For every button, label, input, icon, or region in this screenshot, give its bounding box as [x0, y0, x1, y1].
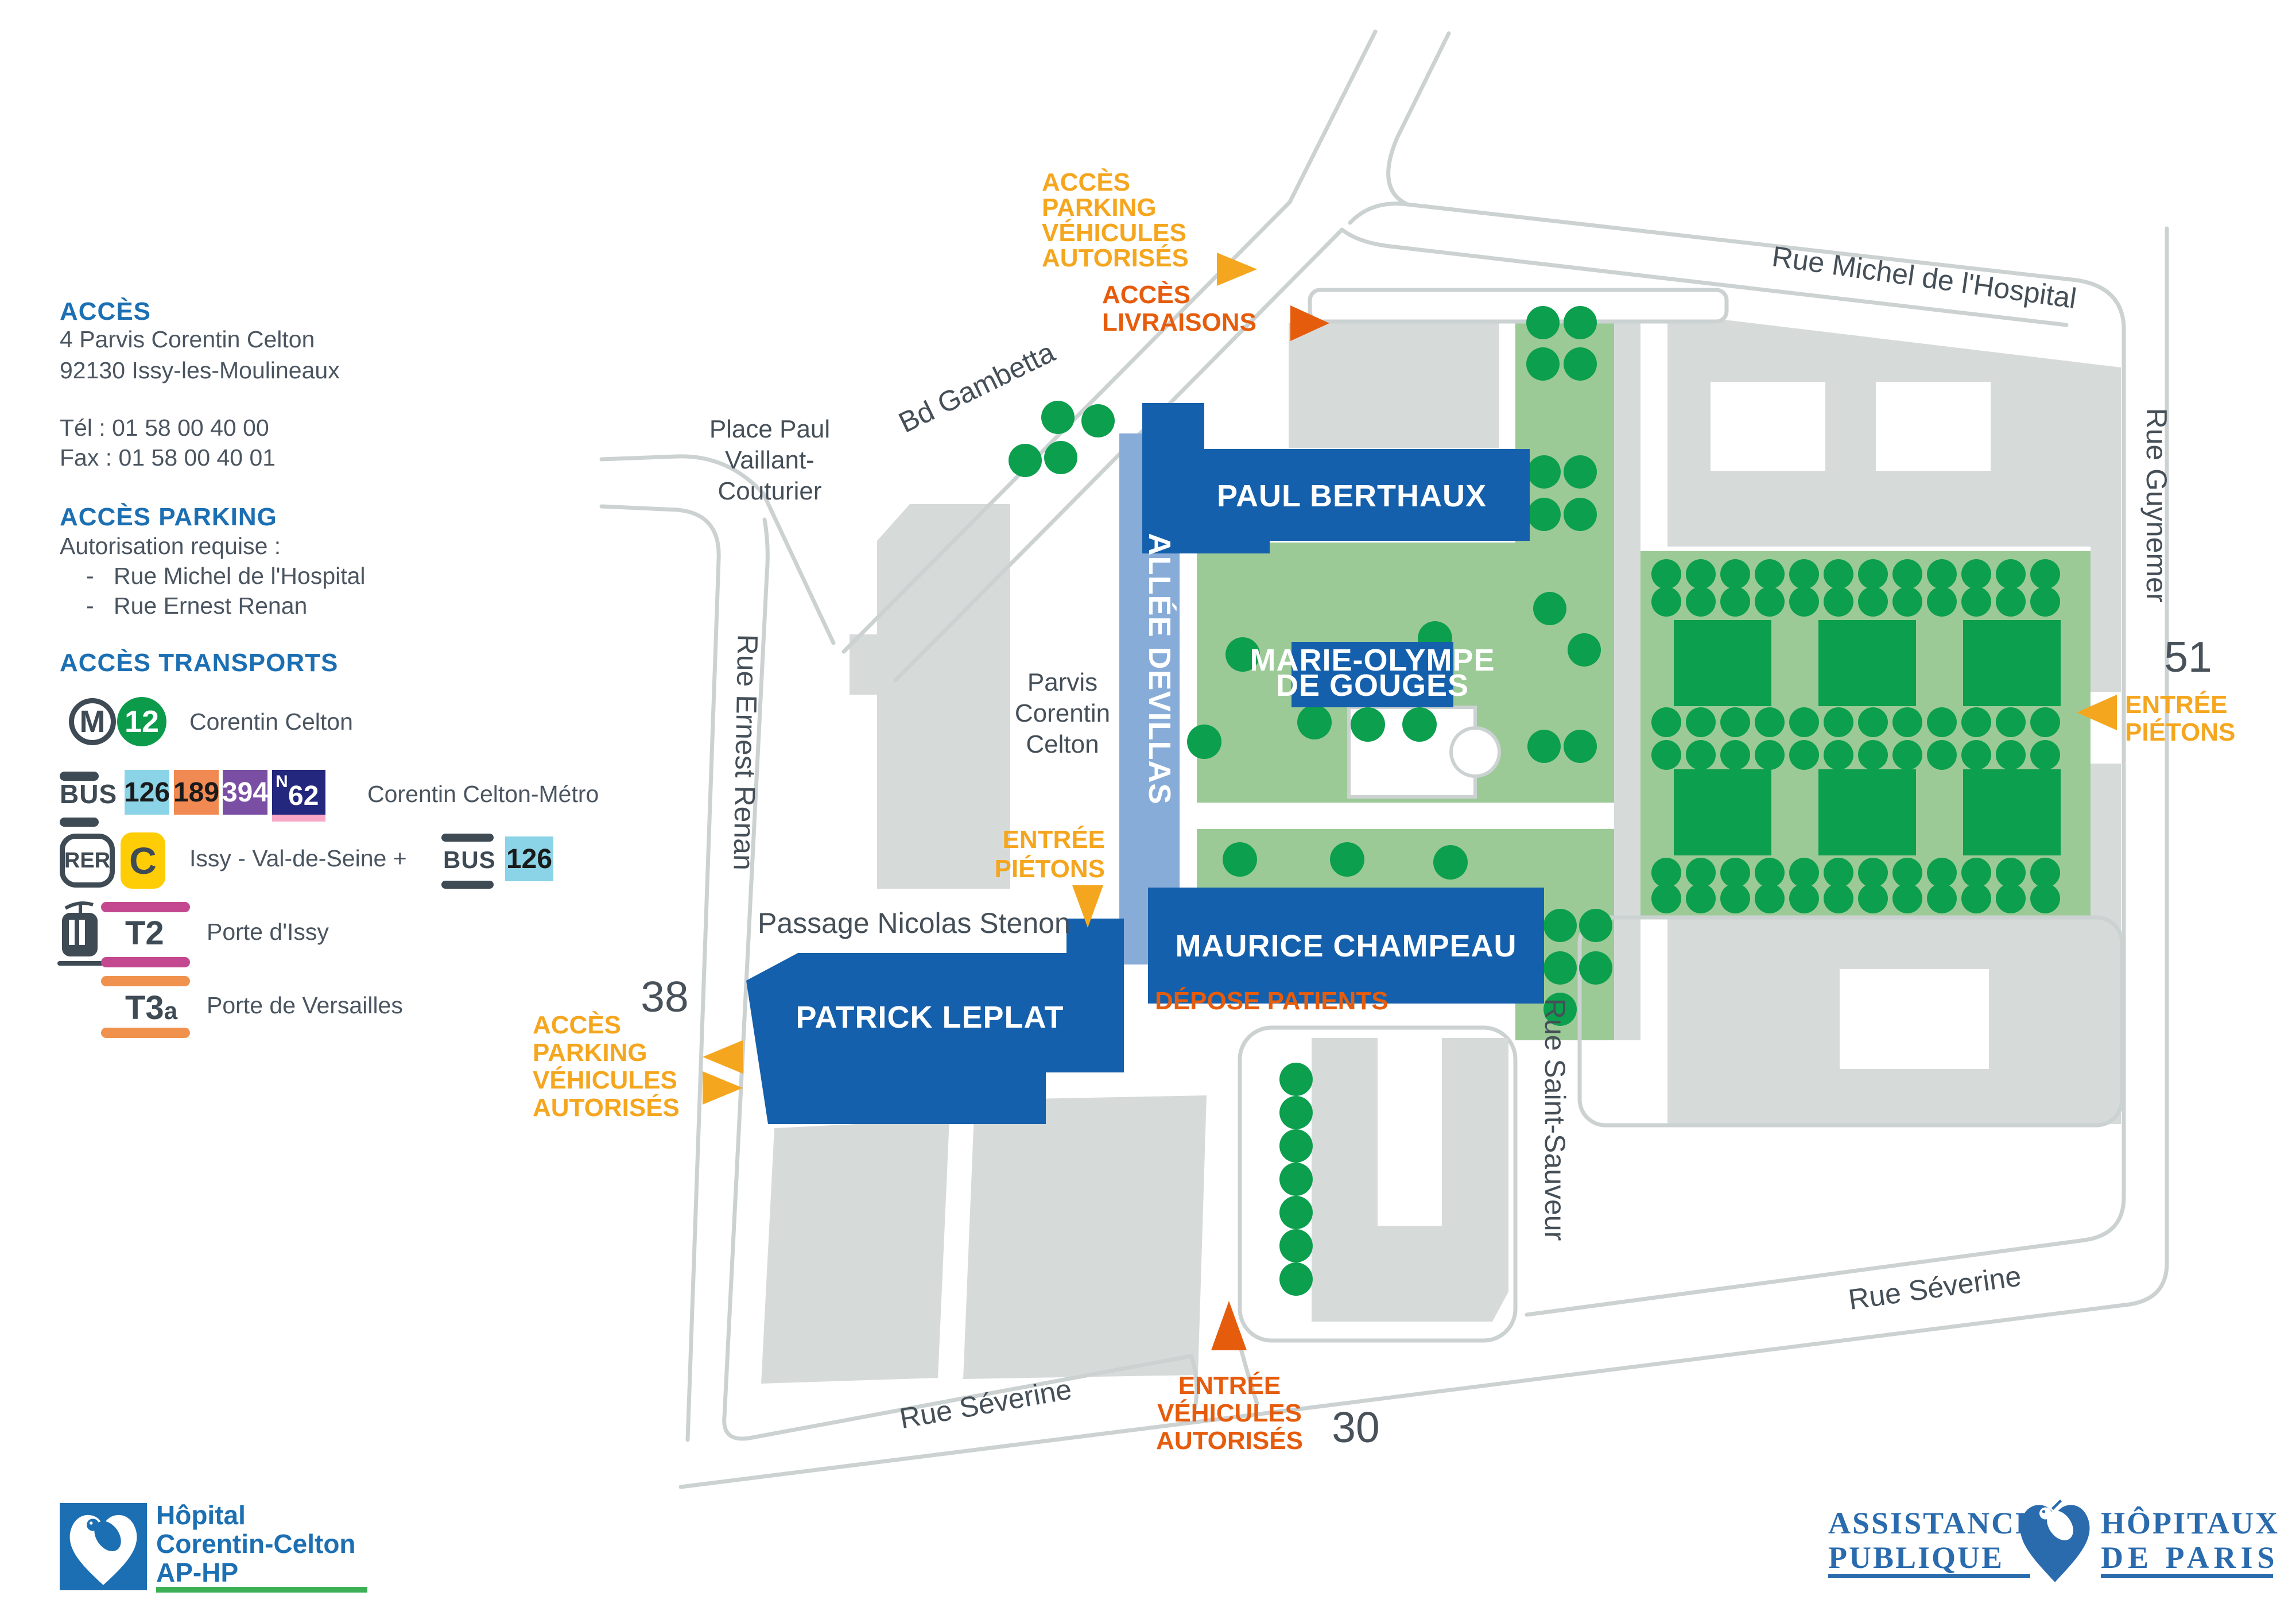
hospital-logo-heart-icon [60, 1503, 147, 1590]
parvis-line1: Parvis [1027, 668, 1097, 696]
street-label-severine-left: Rue Séverine [897, 1373, 1074, 1435]
street-label-gambetta: Bd Gambetta [894, 336, 1060, 439]
legend-tel: Tél : 01 58 00 40 00 [60, 415, 269, 441]
legend-fax: Fax : 01 58 00 40 01 [60, 444, 276, 471]
t3a-line-label: T3a [125, 989, 177, 1027]
metro-station: Corentin Celton [189, 708, 353, 735]
label-marie-olympe-2: DE GOUGES [1276, 668, 1469, 703]
access-vehicules-2: VÉHICULES [1157, 1399, 1302, 1427]
courtyard-1 [1711, 382, 1825, 471]
access-parking-left-4: AUTORISÉS [533, 1093, 680, 1122]
access-pietons-center-2: PIÉTONS [995, 854, 1105, 883]
number-51: 51 [2164, 633, 2212, 681]
access-vehicules-3: AUTORISÉS [1156, 1426, 1303, 1455]
chapel-apse [1451, 728, 1499, 776]
bus-line-394-badge: 394 [223, 770, 267, 815]
legend-address-line1: 4 Parvis Corentin Celton [60, 326, 315, 353]
bus-night-62: 62 [288, 780, 319, 812]
rer-line-C-badge: C [121, 832, 165, 889]
building-bottom-left-1 [761, 1120, 949, 1384]
t2-bar-bottom [101, 957, 190, 967]
access-livraisons-2: LIVRAISONS [1102, 308, 1256, 336]
building-north-of-berthaux [1289, 323, 1499, 448]
bus-night-pink-strip [272, 815, 325, 822]
aphp-word-hopitaux: HÔPITAUX [2101, 1505, 2279, 1541]
legend-parking-dash2: - [86, 592, 94, 619]
parvis-line2: Corentin [1015, 699, 1110, 727]
gray-path-strip [1614, 304, 1640, 1040]
legend-parking-title: ACCÈS PARKING [60, 503, 277, 532]
label-maurice-champeau: MAURICE CHAMPEAU [1176, 929, 1517, 963]
aphp-word-deparis: DE PARIS [2101, 1540, 2279, 1575]
legend-parking-note: Autorisation requise : [60, 533, 281, 560]
t2-bar-top [101, 902, 190, 912]
legend-transports-title: ACCÈS TRANSPORTS [60, 649, 338, 677]
rer-bus-logo-bar-bottom [441, 881, 494, 889]
delivery-bay-outline [1310, 290, 1727, 321]
access-parking-top-3: VÉHICULES [1042, 218, 1186, 247]
t2-station: Porte d'Issy [207, 919, 329, 946]
access-vehicules-1: ENTRÉE [1178, 1371, 1281, 1400]
hospital-access-map: Rue Michel de l'Hospital Rue Guynemer Bd… [0, 0, 2296, 1623]
t3a-line-t3: T3 [125, 989, 164, 1027]
access-parking-left-1: ACCÈS [533, 1010, 621, 1039]
bus-line-126-badge: 126 [125, 770, 169, 815]
aphp-underline-left [1828, 1574, 2030, 1578]
bus-night-N62-badge: N 62 [272, 770, 325, 815]
legend-address-line2: 92130 Issy-les-Moulineaux [60, 357, 340, 384]
aphp-word-assistance: ASSISTANCE [1828, 1505, 2038, 1541]
hospital-logo-square [60, 1503, 147, 1590]
legend-parking-dash1: - [86, 563, 94, 590]
number-30: 30 [1332, 1403, 1379, 1451]
t3a-line-suffix: a [164, 997, 177, 1024]
metro-line-12-badge: 12 [117, 697, 166, 746]
label-patrick-leplat: PATRICK LEPLAT [796, 1000, 1064, 1035]
bus-night-N: N [276, 772, 288, 792]
metro-icon: M [69, 698, 116, 745]
place-paul-line3: Couturier [718, 477, 822, 505]
rer-bus-126-badge: 126 [505, 836, 553, 881]
street-label-michel: Rue Michel de l'Hospital [1770, 240, 2078, 315]
access-pietons-right-2: PIÉTONS [2125, 718, 2235, 746]
rer-bus-logo-bar-top [441, 834, 494, 842]
label-allee-devillas: ALLÉE DEVILLAS [1142, 533, 1177, 804]
legend-parking-item2: Rue Ernest Renan [114, 592, 307, 619]
aphp-word-publique: PUBLIQUE [1828, 1540, 2004, 1575]
arrow-parking-left-in-icon [703, 1040, 743, 1074]
access-pietons-right-1: ENTRÉE [2125, 690, 2227, 719]
rer-icon: RER [60, 834, 115, 888]
t3a-station: Porte de Versailles [207, 992, 403, 1019]
building-parvis-west [877, 504, 1010, 889]
rer-bus-logo-text: BUS [443, 846, 496, 874]
access-parking-top-2: PARKING [1042, 193, 1157, 222]
t3a-bar-bottom [101, 1028, 190, 1038]
bus-logo-text: BUS [60, 778, 117, 809]
t3a-bar-top [101, 976, 190, 986]
courtyard-2 [1876, 382, 1991, 471]
street-label-passage: Passage Nicolas Stenon [758, 907, 1071, 939]
rer-station: Issy - Val-de-Seine + [189, 845, 407, 872]
access-pietons-center-1: ENTRÉE [1003, 825, 1105, 854]
bus-station: Corentin Celton-Métro [367, 781, 599, 808]
garden-path [1197, 803, 1614, 829]
courtyard-3 [1840, 969, 1989, 1069]
road-gambetta-upper-east-curb [1389, 33, 1449, 204]
label-paul-berthaux: PAUL BERTHAUX [1217, 479, 1487, 513]
map-canvas: Rue Michel de l'Hospital Rue Guynemer Bd… [0, 0, 2296, 1623]
arrow-parking-left-out-icon [703, 1071, 743, 1105]
building-bottom-left-2 [963, 1095, 1207, 1379]
tram-icon [57, 899, 106, 974]
tree-dots-gambetta [1009, 401, 1115, 477]
aphp-heart-icon [2012, 1493, 2098, 1587]
t2-line-label: T2 [125, 914, 164, 952]
street-label-guynemer: Rue Guynemer [2140, 408, 2173, 602]
access-livraisons-1: ACCÈS [1102, 280, 1190, 309]
access-depose-patients: DÉPOSE PATIENTS [1155, 986, 1389, 1015]
place-paul-line2: Vaillant- [725, 446, 815, 474]
hospital-logo-line1: Hôpital [156, 1501, 246, 1529]
access-parking-left-3: VÉHICULES [533, 1066, 677, 1094]
bus-logo-bar-bottom [60, 818, 99, 827]
access-parking-top-1: ACCÈS [1042, 168, 1130, 196]
street-label-renan: Rue Ernest Renan [727, 634, 763, 870]
access-parking-left-2: PARKING [533, 1039, 647, 1067]
legend-parking-item1: Rue Michel de l'Hospital [114, 563, 366, 590]
street-label-saint-sauveur: Rue Saint-Sauveur [1539, 998, 1571, 1241]
hospital-logo-line3: AP-HP [156, 1558, 238, 1587]
hospital-logo-line2: Corentin-Celton [156, 1529, 356, 1558]
hospital-logo-green-bar [156, 1587, 367, 1593]
parvis-line3: Celton [1026, 730, 1099, 758]
place-paul-line1: Place Paul [709, 415, 830, 443]
bus-line-189-badge: 189 [174, 770, 219, 815]
legend-acces-title: ACCÈS [60, 297, 151, 326]
number-38: 38 [641, 973, 688, 1021]
access-parking-top-4: AUTORISÉS [1042, 243, 1189, 272]
aphp-underline-right [2101, 1574, 2273, 1578]
